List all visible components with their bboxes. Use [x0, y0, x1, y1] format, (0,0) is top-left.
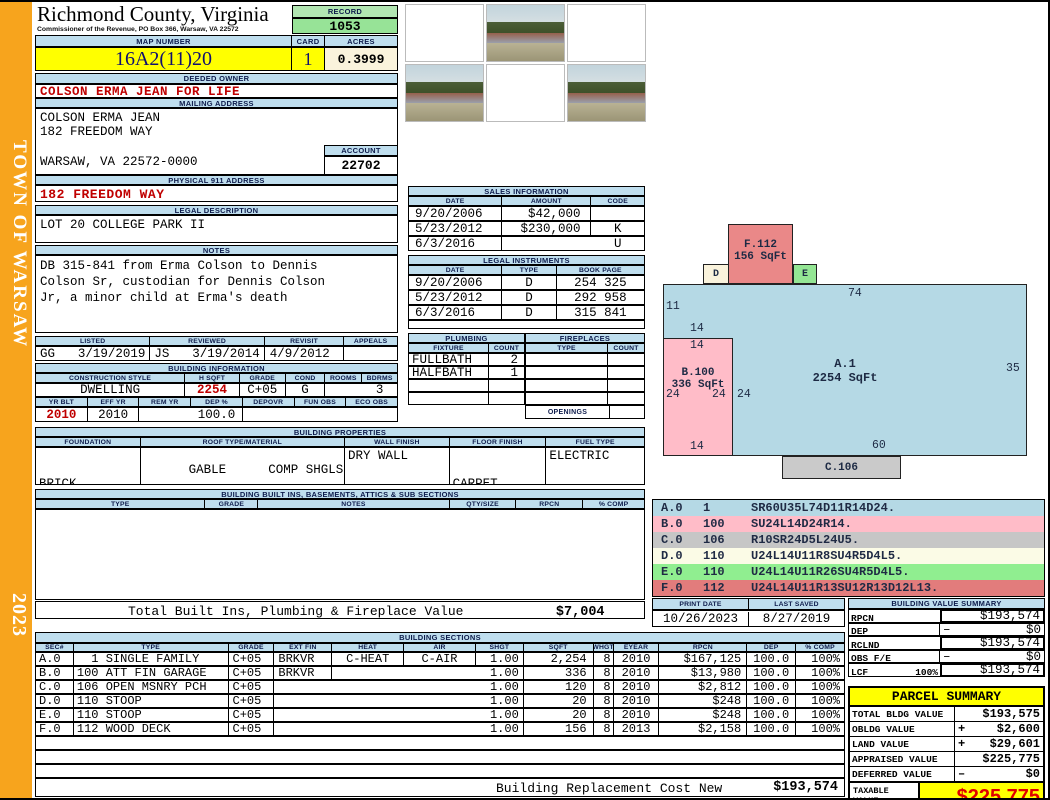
property-photo-5[interactable] [486, 64, 565, 122]
bs-rpcn: $167,125 [659, 652, 747, 666]
construction-style-header: CONSTRUCTION STYLE [36, 374, 185, 382]
property-record-card: TOWN OF WARSAW 2023 Richmond County, Vir… [0, 0, 1050, 800]
bs-eyear: 2010 [614, 708, 660, 722]
bs-whgt: 8 [594, 708, 614, 722]
fixture-count [489, 393, 524, 404]
bs-whgt: 8 [594, 666, 614, 680]
bs-row: A.0 1 SINGLE FAMILY C+05 BRKVR C-HEAT C-… [35, 652, 845, 666]
fixture-count-header: COUNT [489, 344, 524, 352]
wall-finish-value: DRY WALL [345, 448, 450, 484]
dep-pct-header: DEP % [191, 398, 243, 406]
bi-comp-header: % COMP [583, 500, 644, 508]
sales-code: K [591, 222, 644, 236]
openings-value [610, 406, 644, 418]
legal-empty-row [408, 320, 645, 329]
code-path: U24L14U11R13SU12R13D12L13. [751, 581, 938, 595]
depovr-header: DEPOVR [243, 398, 295, 406]
bs-comp: 100% [796, 652, 844, 666]
record-value: 1053 [292, 18, 398, 34]
bs-eyear: 2013 [614, 722, 660, 736]
legal-date: 9/20/2006 [409, 276, 502, 290]
legal-type: D [502, 276, 557, 290]
bs-sec: F.0 [36, 722, 74, 736]
bs-empty-row [35, 750, 845, 764]
legal-description-header: LEGAL DESCRIPTION [35, 205, 398, 215]
ecoobs-header: ECO OBS [346, 398, 397, 406]
bi-qty-header: QTY/SIZE [450, 500, 517, 508]
reviewed-header: REVIEWED [150, 337, 264, 345]
bs-eyear: 2010 [614, 694, 660, 708]
fixture-count [489, 380, 524, 391]
code-sec: B.0 [653, 517, 703, 531]
code-sec: C.0 [653, 533, 703, 547]
fireplace-row [525, 379, 645, 392]
legal-bookpage-header: BOOK PAGE [557, 266, 644, 274]
map-number-header: MAP NUMBER [35, 35, 292, 47]
bs-type: 1 SINGLE FAMILY [74, 652, 229, 666]
fireplace-type [526, 393, 608, 404]
bs-eyear-header: EYEAR [614, 644, 660, 651]
bs-shgt-header: SHGT [476, 644, 524, 651]
fireplace-count [608, 393, 644, 404]
code-num: 110 [703, 565, 751, 579]
built-ins-total-label: Total Built Ins, Plumbing & Fireplace Va… [128, 604, 463, 619]
fireplace-type-header: TYPE [526, 344, 608, 352]
roof-header: ROOF TYPE/MATERIAL [141, 438, 345, 446]
bvs-row-dep: DEP – $0 [848, 623, 1045, 636]
visits-value-row: GG 3/19/2019 JS 3/19/2014 4/9/2012 [35, 346, 398, 361]
fixture-count: 2 [489, 353, 524, 367]
bp-value-row: BRICK CRAWL GABLECOMP SHGLS DRY WALL CAR… [35, 447, 645, 485]
bi-grade-header: GRADE [205, 500, 258, 508]
bs-sec-header: SEC# [36, 644, 74, 651]
parcel-summary: PARCEL SUMMARY TOTAL BLDG VALUE $193,575… [848, 686, 1045, 800]
ps-label: APPRAISED VALUE [850, 752, 955, 766]
code-path: U24L14U11R26SU4R5D4L5. [751, 565, 909, 579]
funobs-header: FUN OBS [295, 398, 347, 406]
sketch-dim-b-above: 14 [690, 322, 704, 335]
legal-type: D [502, 306, 557, 320]
code-path: SR60U35L74D11R14D24. [751, 501, 895, 515]
bs-shgt: 1.00 [476, 708, 524, 722]
bs-sec: A.0 [36, 652, 74, 666]
property-photo-3[interactable] [567, 4, 646, 62]
code-sec: D.0 [653, 549, 703, 563]
bs-empty-row [35, 764, 845, 778]
bvs-row-lcf: LCF 100% $193,574 [848, 663, 1045, 677]
sales-information-header: SALES INFORMATION [408, 186, 645, 196]
fuel-type-value: ELECTRIC [546, 448, 644, 484]
plumbing-header: PLUMBING [408, 333, 525, 343]
floor-finish-line-1: CARPET [453, 477, 546, 484]
openings-row: OPENINGS [525, 405, 645, 419]
card-header: CARD [291, 35, 325, 47]
fireplace-row [525, 366, 645, 379]
rooms-header: ROOMS [325, 374, 362, 382]
dep-pct-value: 100.0 [191, 408, 243, 422]
bi-value-row-2: 2010 2010 100.0 [35, 407, 398, 422]
bvs-op: – [943, 624, 951, 635]
county-title: Richmond County, Virginia [37, 4, 289, 25]
bvs-label: OBS F/E [849, 651, 940, 662]
visits-header-row: LISTED REVIEWED REVISIT APPEALS [35, 336, 398, 346]
built-ins-empty-area [35, 509, 645, 600]
built-ins-header: BUILDING BUILT INS, BASEMENTS, ATTICS & … [35, 489, 645, 499]
bs-sqft: 156 [524, 722, 594, 736]
ps-value: $225,775 [982, 752, 1040, 766]
ps-label: TOTAL BLDG VALUE [850, 707, 955, 721]
sketch-dim-a-left-upper: 11 [666, 300, 680, 313]
sketch-box-e: E [793, 264, 817, 284]
bs-type: 110 STOOP [74, 708, 229, 722]
ps-row-land: LAND VALUE + $29,601 [850, 737, 1043, 752]
fixture: FULLBATH [409, 353, 489, 367]
sketch-box-f: F.112 156 SqFt [728, 224, 793, 284]
bs-row: D.0 110 STOOP C+05 1.00 20 8 2010 $248 1… [35, 694, 845, 708]
sidebar-year-label: 2023 [2, 580, 30, 650]
code-sec: A.0 [653, 501, 703, 515]
record-header: RECORD [292, 5, 398, 18]
openings-label: OPENINGS [526, 406, 610, 418]
sketch-f-sqft: 156 SqFt [729, 251, 792, 263]
bs-comp: 100% [796, 722, 844, 736]
bs-whgt-header: WHGT [594, 644, 614, 651]
notes-line-2: Colson Sr, custodian for Dennis Colson [36, 274, 397, 290]
ps-value: $0 [1026, 767, 1040, 781]
yrblt-header: YR BLT [36, 398, 88, 406]
notes-header: NOTES [35, 245, 398, 255]
fireplace-count [608, 367, 644, 378]
wall-finish-header: WALL FINISH [345, 438, 450, 446]
building-value-summary-header: BUILDING VALUE SUMMARY [848, 598, 1045, 609]
sketch-code-row: A.0 1 SR60U35L74D11R14D24. [653, 500, 1044, 516]
reviewed-by: JS [154, 347, 169, 361]
bs-comp: 100% [796, 680, 844, 694]
bs-eyear: 2010 [614, 680, 660, 694]
building-properties-header: BUILDING PROPERTIES [35, 427, 645, 437]
account-header: ACCOUNT [324, 145, 398, 156]
fireplaces-col-headers: TYPE COUNT [525, 343, 645, 353]
bvs-value: $193,574 [980, 609, 1040, 623]
bs-rpcn: $2,812 [659, 680, 747, 694]
fixture: HALFBATH [409, 366, 489, 380]
sales-amount: $42,000 [502, 207, 591, 221]
bvs-label: RCLND [849, 637, 941, 649]
bs-sqft: 20 [524, 708, 594, 722]
property-photo-6[interactable] [567, 64, 646, 122]
ps-op: + [958, 722, 965, 736]
print-date-header: PRINT DATE [653, 599, 749, 609]
sales-code-header: CODE [591, 197, 644, 205]
legal-date-header: DATE [409, 266, 502, 274]
bs-sqft: 336 [524, 666, 594, 680]
physical-address-value: 182 FREEDOM WAY [35, 185, 398, 202]
bs-grade: C+05 [229, 666, 275, 680]
sales-date: 9/20/2006 [409, 207, 502, 221]
bs-shgt: 1.00 [476, 722, 524, 736]
building-information-header: BUILDING INFORMATION [35, 363, 398, 373]
bs-sqft: 2,254 [524, 652, 594, 666]
bvs-row-rpcn: RPCN $193,574 [848, 609, 1045, 623]
sketch-dim-a-top: 74 [848, 287, 862, 300]
bs-row: B.0 100 ATT FIN GARAGE C+05 BRKVR 1.00 3… [35, 666, 845, 680]
cond-value: G [286, 383, 326, 397]
bs-heat-header: HEAT [332, 644, 404, 651]
built-ins-col-headers: TYPE GRADE NOTES QTY/SIZE RPCN % COMP [35, 499, 645, 509]
foundation-line-1: BRICK [39, 477, 140, 484]
ps-op: – [958, 767, 965, 781]
last-saved-value: 8/27/2019 [749, 612, 844, 626]
commissioner-subtitle: Commissioner of the Revenue, PO Box 366,… [37, 26, 289, 33]
legal-col-headers: DATE TYPE BOOK PAGE [408, 265, 645, 275]
bvs-value: $193,574 [980, 636, 1040, 650]
ps-label: DEFERRED VALUE [850, 767, 955, 781]
sales-row: 5/23/2012 $230,000 K [408, 221, 645, 236]
built-ins-total-value: $7,004 [556, 605, 605, 619]
bvs-label: DEP [849, 624, 940, 635]
plumbing-col-headers: FIXTURE COUNT [408, 343, 525, 353]
bs-rpcn: $248 [659, 708, 747, 722]
hsqft-header: H SQFT [185, 374, 240, 382]
fireplace-type [526, 380, 608, 391]
bvs-row-obs: OBS F/E – $0 [848, 650, 1045, 663]
bs-dep: 100.0 [747, 722, 796, 736]
bs-comp: 100% [796, 666, 844, 680]
sketch-dim-b-left: 24 [666, 388, 680, 401]
fireplace-count [608, 354, 644, 365]
construction-style-value: DWELLING [36, 383, 185, 397]
bs-row: E.0 110 STOOP C+05 1.00 20 8 2010 $248 1… [35, 708, 845, 722]
bs-dep: 100.0 [747, 680, 796, 694]
bs-shgt: 1.00 [476, 666, 524, 680]
parcel-summary-title: PARCEL SUMMARY [850, 688, 1043, 707]
sketch-code-row: F.0 112 U24L14U11R13SU12R13D12L13. [653, 580, 1044, 596]
sketch-code-row: E.0 110 U24L14U11R26SU4R5D4L5. [653, 564, 1044, 580]
grade-header: GRADE [240, 374, 286, 382]
code-num: 100 [703, 517, 751, 531]
code-path: R10SR24D5L24U5. [751, 533, 859, 547]
code-num: 110 [703, 549, 751, 563]
ps-row-deferred: DEFERRED VALUE – $0 [850, 767, 1043, 783]
bs-comp: 100% [796, 694, 844, 708]
bs-grade: C+05 [229, 694, 275, 708]
grade-value: C+05 [240, 383, 286, 397]
sketch-box-c: C.106 [782, 456, 901, 479]
legal-date: 6/3/2016 [409, 306, 502, 320]
bvs-label: RPCN [849, 610, 941, 622]
fireplace-count-header: COUNT [608, 344, 644, 352]
mailing-address-header: MAILING ADDRESS [35, 98, 398, 108]
bs-sec: E.0 [36, 708, 74, 722]
sales-date: 6/3/2016 [409, 237, 502, 251]
bs-sqft-header: SQFT [524, 644, 594, 651]
property-photo-4[interactable] [405, 64, 484, 122]
bvs-lcf-percent: 100% [915, 667, 938, 676]
sketch-code-row: C.0 106 R10SR24D5L24U5. [653, 532, 1044, 548]
bdrms-header: BDRMS [362, 374, 397, 382]
built-ins-total-row: Total Built Ins, Plumbing & Fireplace Va… [35, 601, 645, 619]
bs-sec: B.0 [36, 666, 74, 680]
sketch-dim-b-top: 14 [690, 339, 704, 352]
legal-bookpage: 292 958 [557, 291, 644, 305]
mailing-line-1: COLSON ERMA JEAN [36, 109, 397, 125]
bs-heat: C-HEAT [332, 652, 404, 666]
revisit-date: 4/9/2012 [265, 347, 345, 361]
bs-shgt: 1.00 [476, 694, 524, 708]
print-value-row: 10/26/2023 8/27/2019 [652, 610, 845, 627]
acres-value: 0.3999 [324, 47, 398, 71]
bs-sec: D.0 [36, 694, 74, 708]
bs-type: 110 STOOP [74, 694, 229, 708]
fixture [409, 393, 489, 404]
bi-value-row-1: DWELLING 2254 C+05 G 3 [35, 383, 398, 397]
header-title-block: Richmond County, Virginia Commissioner o… [37, 4, 289, 33]
taxable-label-line1: TAXABLE [853, 786, 918, 796]
bs-type: 106 OPEN MSNRY PCH [74, 680, 229, 694]
ps-row-total-bldg: TOTAL BLDG VALUE $193,575 [850, 707, 1043, 722]
notes-box: DB 315-841 from Erma Colson to Dennis Co… [35, 255, 398, 333]
sketch-codes-table: A.0 1 SR60U35L74D11R14D24. B.0 100 SU24L… [652, 499, 1045, 597]
fixture-header: FIXTURE [409, 344, 489, 352]
revisit-header: REVISIT [265, 337, 345, 345]
bs-whgt: 8 [594, 694, 614, 708]
yrblt-value: 2010 [36, 408, 88, 422]
code-num: 106 [703, 533, 751, 547]
bs-empty-row [35, 736, 845, 750]
deeded-owner-value: COLSON ERMA JEAN FOR LIFE [35, 84, 398, 98]
bs-comp: 100% [796, 708, 844, 722]
bs-rpcn: $2,158 [659, 722, 747, 736]
bs-grade: C+05 [229, 722, 275, 736]
sales-code: U [591, 237, 644, 251]
bs-sec: C.0 [36, 680, 74, 694]
bs-sqft: 120 [524, 680, 594, 694]
appeals-header: APPEALS [344, 337, 397, 345]
sketch-dim-a-inner-left: 24 [737, 388, 751, 401]
sales-date-header: DATE [409, 197, 502, 205]
bi-notes-header: NOTES [258, 500, 449, 508]
bs-row: F.0 112 WOOD DECK C+05 1.00 156 8 2013 $… [35, 722, 845, 736]
legal-type: D [502, 291, 557, 305]
bs-eyear: 2010 [614, 666, 660, 680]
fireplaces-header: FIREPLACES [525, 333, 645, 343]
bvs-op: – [943, 651, 951, 662]
print-date-value: 10/26/2023 [653, 612, 749, 626]
bs-shgt: 1.00 [476, 680, 524, 694]
effyr-value: 2010 [88, 408, 140, 422]
sketch-f-label: F.112 [729, 239, 792, 251]
property-photo-1[interactable] [405, 4, 484, 62]
ps-row-obldg: OBLDG VALUE + $2,600 [850, 722, 1043, 737]
bvs-row-rclnd: RCLND $193,574 [848, 636, 1045, 650]
ps-label: OBLDG VALUE [850, 722, 955, 736]
bs-type: 100 ATT FIN GARAGE [74, 666, 229, 680]
bs-extfin: BRKVR [274, 652, 332, 666]
code-num: 1 [703, 501, 751, 515]
bp-header-row: FOUNDATION ROOF TYPE/MATERIAL WALL FINIS… [35, 437, 645, 447]
code-path: SU24L14D24R14. [751, 517, 852, 531]
legal-row: 6/3/2016 D 315 841 [408, 305, 645, 320]
bs-whgt: 8 [594, 652, 614, 666]
sketch-dim-a-right: 35 [1006, 362, 1020, 375]
bs-col-headers: SEC# TYPE GRADE EXT FIN HEAT AIR SHGT SQ… [35, 643, 845, 652]
bs-grade-header: GRADE [229, 644, 275, 651]
sales-amount-header: AMOUNT [502, 197, 591, 205]
legal-row: 5/23/2012 D 292 958 [408, 290, 645, 305]
legal-bookpage: 254 325 [557, 276, 644, 290]
sketch-b-label: B.100 [664, 367, 732, 379]
ps-row-appraised: APPRAISED VALUE $225,775 [850, 752, 1043, 767]
deeded-owner-header: DEEDED OWNER [35, 73, 398, 84]
replacement-cost-label: Building Replacement Cost New [496, 781, 722, 796]
bs-sqft: 20 [524, 694, 594, 708]
code-path: U24L14U11R8SU4R5D4L5. [751, 549, 902, 563]
last-saved-header: LAST SAVED [749, 599, 844, 609]
reviewed-date: 3/19/2014 [192, 347, 260, 361]
bi-header-row-2: YR BLT EFF YR REM YR DEP % DEPOVR FUN OB… [35, 397, 398, 407]
ps-value: $29,601 [990, 737, 1040, 751]
legal-row: 9/20/2006 D 254 325 [408, 275, 645, 290]
legal-description-value: LOT 20 COLLEGE PARK II [35, 215, 398, 243]
plumbing-row: FULLBATH 2 [408, 353, 525, 366]
property-photo-2[interactable] [486, 4, 565, 62]
legal-type-header: TYPE [502, 266, 557, 274]
code-sec: F.0 [653, 581, 703, 595]
cond-header: COND [286, 374, 326, 382]
bs-rpcn-header: RPCN [659, 644, 747, 651]
sketch-dim-b-bottom: 14 [690, 440, 704, 453]
roof-material-value: COMP SHGLS [268, 463, 343, 477]
bvs-label: LCF [851, 667, 868, 676]
account-value: 22702 [324, 156, 398, 175]
bs-type: 112 WOOD DECK [74, 722, 229, 736]
bi-header-row-1: CONSTRUCTION STYLE H SQFT GRADE COND ROO… [35, 373, 398, 383]
acres-header: ACRES [324, 35, 398, 47]
fireplace-row [525, 353, 645, 366]
sketch-dim-a-bottom: 60 [872, 439, 886, 452]
sales-col-headers: DATE AMOUNT CODE [408, 196, 645, 206]
mailing-line-2: 182 FREEDOM WAY [36, 125, 397, 139]
bs-extfin-header: EXT FIN [274, 644, 332, 651]
bs-dep: 100.0 [747, 652, 796, 666]
fireplace-type [526, 354, 608, 365]
bs-rpcn: $13,980 [659, 666, 747, 680]
replacement-cost-row: Building Replacement Cost New $193,574 [35, 778, 845, 797]
plumbing-row: HALFBATH 1 [408, 366, 525, 379]
sidebar-band: TOWN OF WARSAW 2023 [0, 2, 32, 800]
effyr-header: EFF YR [88, 398, 140, 406]
fireplace-row [525, 392, 645, 405]
fixture-count: 1 [489, 366, 524, 380]
bdrms-value: 3 [362, 383, 397, 397]
bi-type-header: TYPE [36, 500, 205, 508]
physical-address-header: PHYSICAL 911 ADDRESS [35, 175, 398, 185]
roof-type-value: GABLE [189, 463, 227, 477]
replacement-cost-value: $193,574 [773, 780, 838, 795]
ps-op: + [958, 737, 965, 751]
sales-row: 9/20/2006 $42,000 [408, 206, 645, 221]
sketch-dim-b-right: 24 [712, 388, 726, 401]
legal-instruments-header: LEGAL INSTRUMENTS [408, 255, 645, 265]
bs-type-header: TYPE [74, 644, 229, 651]
sales-date: 5/23/2012 [409, 222, 502, 236]
fireplace-type [526, 367, 608, 378]
sketch-box-d: D [703, 264, 729, 284]
ps-row-taxable: TAXABLE VALUE $225,775 [850, 783, 1043, 800]
code-num: 112 [703, 581, 751, 595]
bs-dep: 100.0 [747, 694, 796, 708]
bs-whgt: 8 [594, 680, 614, 694]
